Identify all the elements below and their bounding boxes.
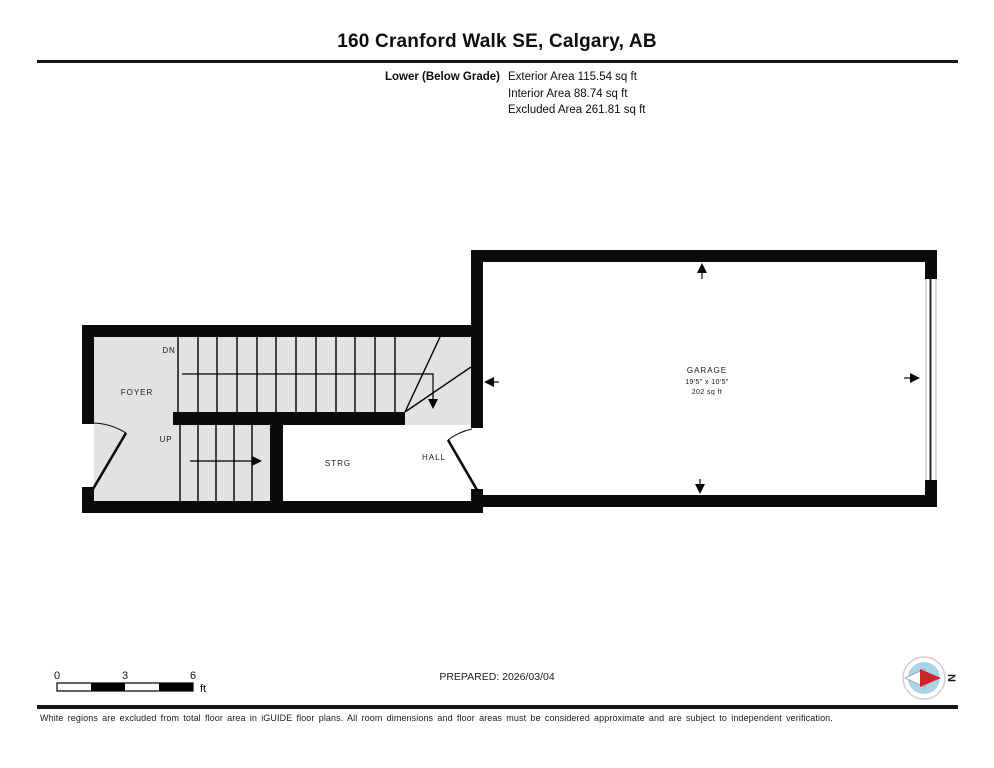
room-label-strg: STRG (325, 459, 351, 468)
wall-garage-bottom (471, 495, 937, 507)
room-label-foyer: FOYER (121, 388, 154, 397)
floor-plan: FOYER DN UP STRG HALL GARAGE 19'5" x 10'… (0, 0, 994, 768)
wall-left-upper (82, 325, 94, 424)
wall-garage-left-stub (471, 489, 483, 507)
wall-left-section-top (82, 325, 483, 337)
garage-door (925, 274, 937, 485)
scale-unit: ft (200, 683, 206, 695)
stair-label-up: UP (160, 435, 173, 444)
wall-garage-right-top (925, 250, 937, 278)
garage-dimensions: 19'5" x 10'5" (685, 379, 729, 386)
wall-left-section-bottom (82, 501, 483, 513)
room-label-garage: GARAGE (687, 366, 727, 375)
wall-stair-separator (173, 412, 405, 425)
wall-strg-left (270, 425, 283, 502)
strg-hall-fill (283, 425, 471, 501)
wall-garage-left (471, 250, 483, 428)
footer-divider (37, 705, 958, 709)
wall-garage-top (471, 250, 937, 262)
disclaimer-text: White regions are excluded from total fl… (40, 713, 960, 723)
prepared-date: PREPARED: 2026/03/04 (0, 671, 994, 683)
wall-garage-right-bottom (925, 484, 937, 507)
room-fills (94, 262, 925, 501)
garage-area: 202 sq ft (692, 389, 722, 396)
room-label-hall: HALL (422, 453, 446, 462)
stair-label-dn: DN (162, 346, 175, 355)
wall-left-lower-stub (82, 487, 94, 513)
